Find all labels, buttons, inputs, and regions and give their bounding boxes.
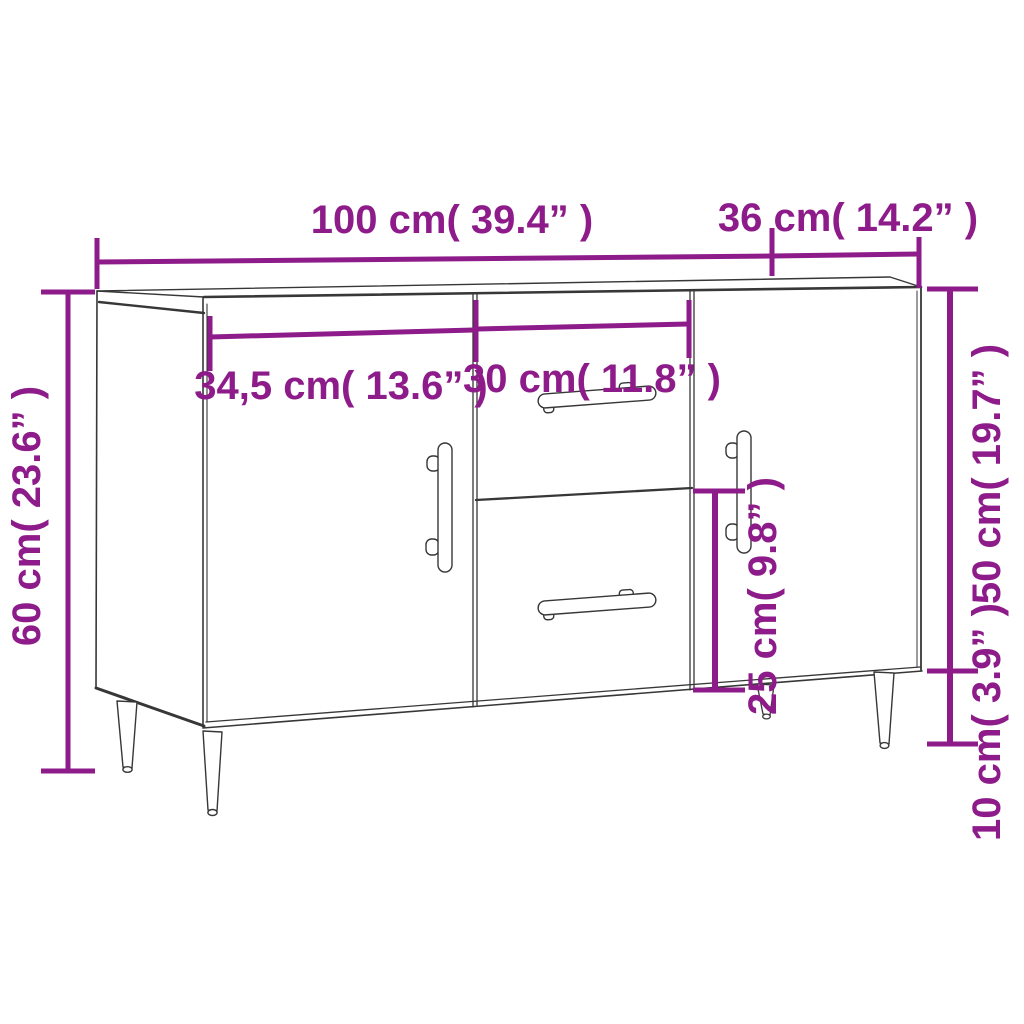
leg-front-right [874, 672, 894, 748]
cabinet-top-front-edge [204, 287, 921, 297]
dim-label-lower-drawer-height: 25 cm( 9.8” ) [741, 477, 785, 715]
sideboard-dimension-drawing: 100 cm( 39.4” ) 36 cm( 14.2” ) 34,5 cm( … [0, 0, 1024, 1024]
dim-label-body-height: 50 cm( 19.7” ) [965, 344, 1009, 604]
dim-line-depth [772, 237, 919, 288]
cabinet-top-left-bevel [97, 291, 204, 297]
dim-label-leg-height: 10 cm( 3.9” ) [965, 603, 1009, 841]
dim-label-left-door-width: 34,5 cm( 13.6” ) [194, 364, 488, 408]
left-panel-top-band [99, 302, 204, 313]
left-panel-left-edge [96, 291, 97, 688]
cabinet-bottom-edge [203, 671, 922, 728]
dim-line-left-door-width [210, 300, 476, 371]
doors-bottom-edge [206, 667, 920, 722]
leg-front-left [203, 731, 222, 816]
dim-label-depth: 36 cm( 14.2” ) [718, 196, 978, 240]
left-door-handle [426, 443, 452, 572]
dim-label-overall-height: 60 cm( 23.6” ) [5, 386, 49, 646]
dim-label-middle-width: 30 cm( 11.8” ) [463, 357, 721, 401]
left-panel-bottom-band [96, 688, 204, 726]
bottom-drawer-handle [537, 588, 656, 621]
leg-back-left [117, 701, 137, 772]
dim-line-overall-height [41, 292, 95, 771]
drawer-divider [476, 488, 692, 500]
dim-label-overall-width: 100 cm( 39.4” ) [311, 198, 593, 242]
diagram-canvas: 100 cm( 39.4” ) 36 cm( 14.2” ) 34,5 cm( … [0, 0, 1024, 1024]
dim-line-middle-width [478, 300, 689, 358]
